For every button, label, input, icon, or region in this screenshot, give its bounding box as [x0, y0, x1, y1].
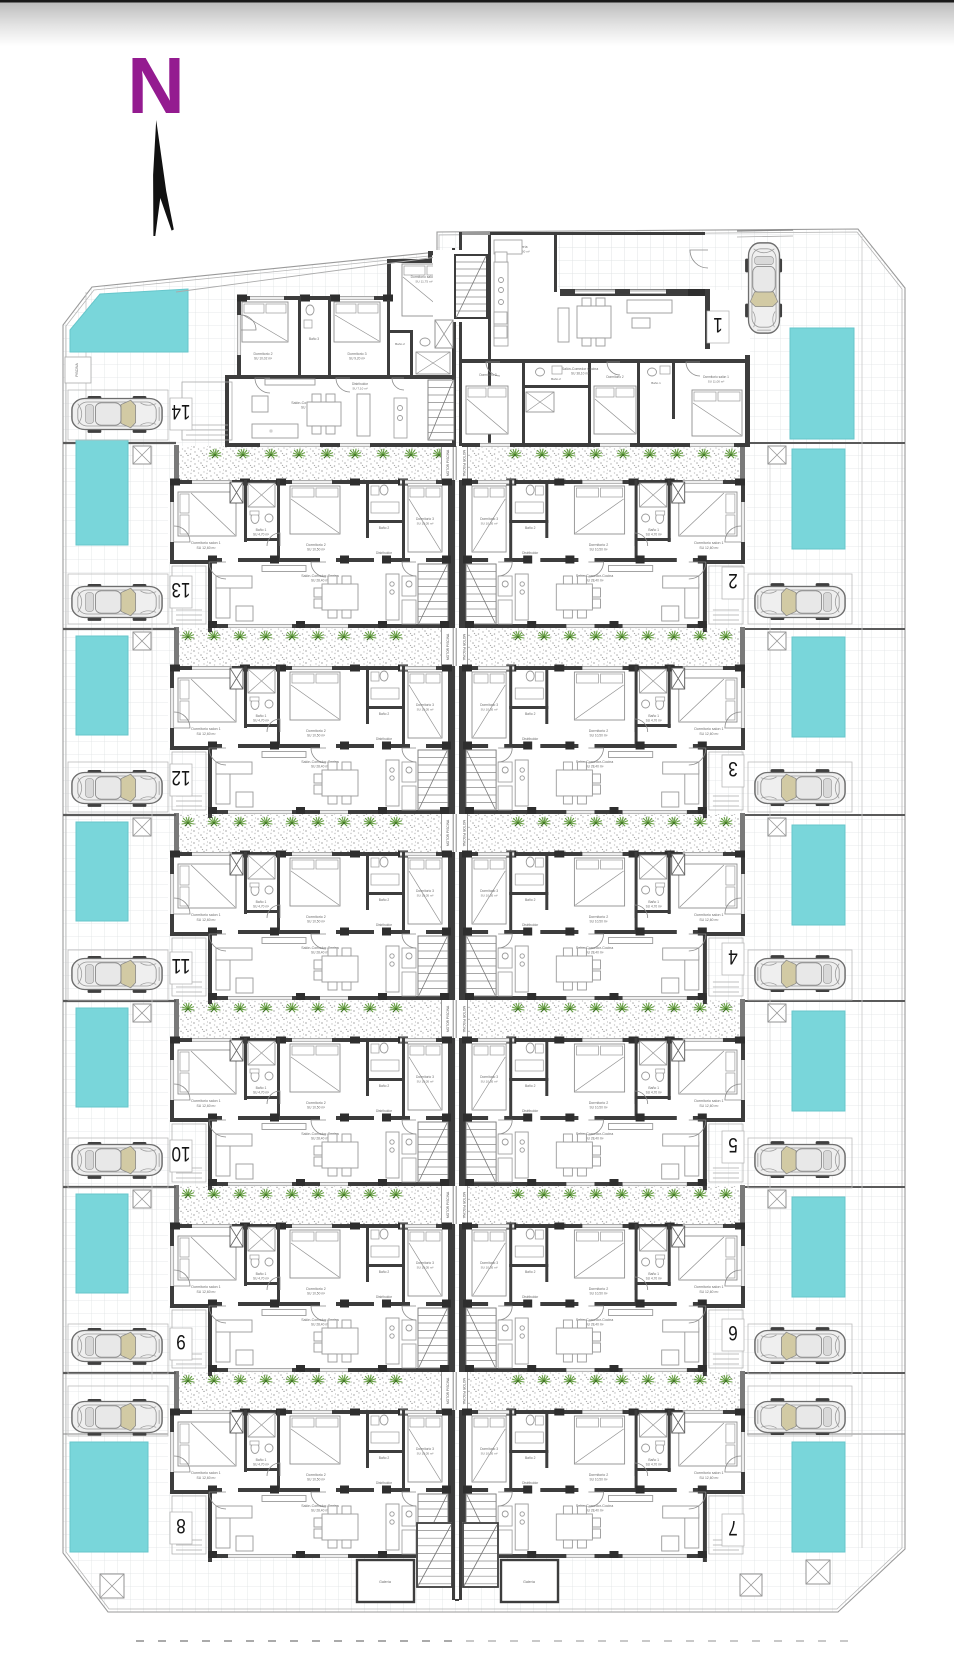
svg-text:14: 14: [171, 400, 190, 423]
svg-text:Dormitorio salon 1: Dormitorio salon 1: [694, 913, 723, 917]
svg-text:Dormitorio 2: Dormitorio 2: [589, 915, 609, 919]
svg-text:SU 9,20 m²: SU 9,20 m²: [349, 357, 365, 361]
svg-text:Dormitorio 2: Dormitorio 2: [306, 1473, 326, 1477]
svg-text:SU 12,60 m²: SU 12,60 m²: [699, 546, 719, 550]
svg-text:Distribuidor: Distribuidor: [522, 551, 539, 555]
svg-text:MOTOR PISCINA: MOTOR PISCINA: [446, 1191, 450, 1218]
svg-text:10: 10: [172, 1142, 191, 1165]
svg-text:Dormitorio 3: Dormitorio 3: [347, 352, 366, 356]
svg-text:Dormitorio 2: Dormitorio 2: [306, 1101, 326, 1105]
svg-text:SU 4,70 m²: SU 4,70 m²: [646, 905, 662, 909]
svg-text:Baño 1: Baño 1: [256, 1086, 267, 1090]
svg-text:Dormitorio 2: Dormitorio 2: [306, 729, 326, 733]
svg-text:SU 12,60 m²: SU 12,60 m²: [196, 918, 216, 922]
svg-text:Dormitorio 3: Dormitorio 3: [416, 517, 434, 521]
svg-text:SU 28,40 m²: SU 28,40 m²: [586, 1323, 604, 1327]
svg-text:SU 28,40 m²: SU 28,40 m²: [311, 1509, 329, 1513]
svg-text:SU 4,70 m²: SU 4,70 m²: [253, 1463, 269, 1467]
svg-text:Dormitorio salon 1: Dormitorio salon 1: [191, 1471, 220, 1475]
svg-text:SU 10,50 m²: SU 10,50 m²: [590, 1478, 608, 1482]
svg-text:MOTOR PISCINA: MOTOR PISCINA: [462, 1192, 466, 1219]
svg-text:Dormitorio 3: Dormitorio 3: [416, 889, 434, 893]
svg-text:SU 12,60 m²: SU 12,60 m²: [196, 732, 216, 736]
svg-text:SU 12,60 m²: SU 12,60 m²: [196, 1290, 216, 1294]
svg-text:Distribuidor: Distribuidor: [522, 737, 539, 741]
svg-text:Baño 2: Baño 2: [379, 712, 390, 716]
svg-text:SU 10,50 m²: SU 10,50 m²: [590, 1292, 608, 1296]
svg-text:SU 4,70 m²: SU 4,70 m²: [646, 1277, 662, 1281]
svg-text:SU 28,40 m²: SU 28,40 m²: [586, 579, 604, 583]
svg-text:Dormitorio 2: Dormitorio 2: [306, 915, 326, 919]
svg-text:13: 13: [172, 578, 191, 601]
svg-text:Dormitorio salon 1: Dormitorio salon 1: [191, 1285, 220, 1289]
svg-text:PISCINA: PISCINA: [75, 362, 79, 376]
svg-text:SU 28,40 m²: SU 28,40 m²: [586, 765, 604, 769]
svg-text:Dormitorio salon 1: Dormitorio salon 1: [191, 1099, 220, 1103]
svg-text:Baño 2: Baño 2: [379, 898, 390, 902]
svg-text:Dormitorio salón 1: Dormitorio salón 1: [703, 375, 729, 379]
svg-text:SU 28,40 m²: SU 28,40 m²: [311, 765, 329, 769]
svg-text:SU 28,40 m²: SU 28,40 m²: [586, 1509, 604, 1513]
svg-text:Baño 2: Baño 2: [525, 1456, 536, 1460]
svg-text:SU 10,50 m²: SU 10,50 m²: [590, 548, 608, 552]
svg-text:Dormitorio salon 1: Dormitorio salon 1: [191, 913, 220, 917]
svg-text:SU 28,40 m²: SU 28,40 m²: [586, 1137, 604, 1141]
svg-text:Galería: Galería: [523, 1580, 535, 1584]
svg-text:Dormitorio 2: Dormitorio 2: [589, 1287, 609, 1291]
svg-text:SU 10,05 m²: SU 10,05 m²: [417, 1080, 434, 1084]
svg-text:Distribuidor: Distribuidor: [376, 1109, 393, 1113]
svg-text:Baño 2: Baño 2: [379, 1084, 390, 1088]
svg-text:Dormitorio salon 1: Dormitorio salon 1: [694, 727, 723, 731]
svg-text:SU 28,40 m²: SU 28,40 m²: [311, 1137, 329, 1141]
svg-text:SU 4,70 m²: SU 4,70 m²: [253, 1277, 269, 1281]
svg-text:SU 10,05 m²: SU 10,05 m²: [417, 522, 434, 526]
svg-text:SU 10,05 m²: SU 10,05 m²: [417, 894, 434, 898]
svg-text:SU 10,05 m²: SU 10,05 m²: [481, 1452, 498, 1456]
svg-text:Distribuidor: Distribuidor: [522, 1109, 539, 1113]
svg-text:Dormitorio salon 1: Dormitorio salon 1: [191, 541, 220, 545]
svg-text:SU 10,05 m²: SU 10,05 m²: [481, 1266, 498, 1270]
svg-text:Distribuidor: Distribuidor: [376, 737, 393, 741]
svg-text:Baño 2: Baño 2: [525, 526, 536, 530]
svg-text:Baño 1: Baño 1: [256, 1458, 267, 1462]
svg-text:Dormitorio 3: Dormitorio 3: [480, 517, 498, 521]
svg-text:SU 11,75 m²: SU 11,75 m²: [415, 280, 432, 284]
svg-text:SU 10,05 m²: SU 10,05 m²: [417, 1266, 434, 1270]
svg-text:Dormitorio 3: Dormitorio 3: [480, 1447, 498, 1451]
svg-text:Galería: Galería: [379, 1580, 391, 1584]
svg-text:SU 10,50 m²: SU 10,50 m²: [307, 1478, 325, 1482]
svg-text:Baño 1: Baño 1: [256, 1272, 267, 1276]
svg-text:Dormitorio 2: Dormitorio 2: [589, 1101, 609, 1105]
svg-text:Dormitorio 2: Dormitorio 2: [306, 543, 326, 547]
svg-text:Dormitorio salon 1: Dormitorio salon 1: [694, 541, 723, 545]
svg-text:SU 10,50 m²: SU 10,50 m²: [307, 1106, 325, 1110]
svg-text:SU 12,60 m²: SU 12,60 m²: [196, 1476, 216, 1480]
svg-text:Baño 2: Baño 2: [525, 1270, 536, 1274]
svg-text:Baño 1: Baño 1: [256, 528, 267, 532]
svg-text:Distribuidor: Distribuidor: [376, 923, 393, 927]
svg-text:MOTOR PISCINA: MOTOR PISCINA: [446, 633, 450, 660]
svg-text:Dormitorio 2: Dormitorio 2: [589, 729, 609, 733]
svg-text:3: 3: [728, 757, 738, 780]
svg-text:SU 10,50 m²: SU 10,50 m²: [590, 920, 608, 924]
svg-text:SU 4,70 m²: SU 4,70 m²: [253, 1091, 269, 1095]
svg-text:Dormitorio salon 1: Dormitorio salon 1: [191, 727, 220, 731]
svg-text:MOTOR PISCINA: MOTOR PISCINA: [446, 449, 450, 476]
svg-text:SU 4,70 m²: SU 4,70 m²: [253, 905, 269, 909]
svg-text:SU 12,60 m²: SU 12,60 m²: [699, 1290, 719, 1294]
svg-text:MOTOR PISCINA: MOTOR PISCINA: [446, 819, 450, 846]
svg-text:SU 10,50 m²: SU 10,50 m²: [307, 1292, 325, 1296]
svg-text:MOTOR PISCINA: MOTOR PISCINA: [462, 450, 466, 477]
svg-text:MOTOR PISCINA: MOTOR PISCINA: [462, 634, 466, 661]
svg-text:Distribuidor: Distribuidor: [352, 382, 369, 386]
svg-text:N: N: [127, 41, 185, 130]
svg-text:Baño 1: Baño 1: [256, 900, 267, 904]
svg-text:Baño 2: Baño 2: [379, 1456, 390, 1460]
svg-text:SU 12,60 m²: SU 12,60 m²: [699, 1104, 719, 1108]
svg-text:SU 10,50 m²: SU 10,50 m²: [307, 734, 325, 738]
svg-text:MOTOR PISCINA: MOTOR PISCINA: [462, 1006, 466, 1033]
svg-text:SU 10,02 m²: SU 10,02 m²: [254, 357, 272, 361]
svg-text:11: 11: [172, 954, 191, 977]
svg-text:SU 7,10 m²: SU 7,10 m²: [352, 387, 367, 391]
svg-text:SU 4,70 m²: SU 4,70 m²: [253, 719, 269, 723]
svg-text:SU 10,05 m²: SU 10,05 m²: [481, 1080, 498, 1084]
svg-text:SU 10,50 m²: SU 10,50 m²: [307, 920, 325, 924]
svg-text:Distribuidor: Distribuidor: [522, 1481, 539, 1485]
svg-text:1: 1: [713, 313, 723, 336]
svg-text:Dormitorio 3: Dormitorio 3: [416, 1075, 434, 1079]
svg-text:Baño 3: Baño 3: [309, 337, 319, 341]
svg-text:SU 10,05 m²: SU 10,05 m²: [417, 708, 434, 712]
svg-text:Baño 1: Baño 1: [648, 528, 659, 532]
svg-text:SU 10,50 m²: SU 10,50 m²: [590, 1106, 608, 1110]
svg-text:Dormitorio 2: Dormitorio 2: [589, 543, 609, 547]
svg-text:Baño 1: Baño 1: [648, 900, 659, 904]
svg-text:MOTOR PISCINA: MOTOR PISCINA: [462, 1378, 466, 1405]
svg-text:SU 10,05 m²: SU 10,05 m²: [481, 708, 498, 712]
svg-text:Distribuidor: Distribuidor: [376, 1481, 393, 1485]
svg-text:SU 4,70 m²: SU 4,70 m²: [253, 533, 269, 537]
svg-text:Dormitorio 2: Dormitorio 2: [253, 352, 272, 356]
svg-text:SU 10,50 m²: SU 10,50 m²: [590, 734, 608, 738]
svg-text:Baño 2: Baño 2: [379, 526, 390, 530]
svg-text:SU 10,05 m²: SU 10,05 m²: [481, 522, 498, 526]
svg-text:SU 38,10 m²: SU 38,10 m²: [571, 372, 589, 376]
svg-text:SU 4,70 m²: SU 4,70 m²: [646, 1091, 662, 1095]
svg-text:Dormitorio 2: Dormitorio 2: [589, 1473, 609, 1477]
svg-text:Distribuidor: Distribuidor: [376, 1295, 393, 1299]
svg-text:SU 12,60 m²: SU 12,60 m²: [699, 918, 719, 922]
svg-text:Dormitorio 2: Dormitorio 2: [606, 375, 624, 379]
svg-text:SU 28,40 m²: SU 28,40 m²: [311, 1323, 329, 1327]
svg-text:Dormitorio 3: Dormitorio 3: [416, 1447, 434, 1451]
svg-text:MOTOR PISCINA: MOTOR PISCINA: [446, 1005, 450, 1032]
svg-text:Dormitorio salon 1: Dormitorio salon 1: [694, 1471, 723, 1475]
svg-text:SU 12,60 m²: SU 12,60 m²: [196, 546, 216, 550]
svg-text:Baño 2: Baño 2: [525, 712, 536, 716]
svg-text:SU 28,40 m²: SU 28,40 m²: [311, 951, 329, 955]
svg-text:Dormitorio 3: Dormitorio 3: [416, 703, 434, 707]
svg-text:Dormitorio 3: Dormitorio 3: [480, 1075, 498, 1079]
svg-text:Baño 2: Baño 2: [551, 377, 561, 381]
svg-text:12: 12: [172, 766, 191, 789]
svg-text:7: 7: [728, 1516, 738, 1539]
svg-text:Distribuidor: Distribuidor: [522, 923, 539, 927]
svg-text:SU 10,05 m²: SU 10,05 m²: [481, 894, 498, 898]
svg-text:8: 8: [176, 1514, 186, 1537]
svg-text:SU 4,70 m²: SU 4,70 m²: [646, 533, 662, 537]
svg-text:SU 11,00 m²: SU 11,00 m²: [708, 380, 725, 384]
svg-text:Baño 2: Baño 2: [395, 342, 405, 346]
svg-text:SU 12,60 m²: SU 12,60 m²: [699, 732, 719, 736]
svg-text:Baño 1: Baño 1: [651, 381, 661, 385]
svg-text:Baño 2: Baño 2: [379, 1270, 390, 1274]
svg-text:Dormitorio salon 1: Dormitorio salon 1: [694, 1099, 723, 1103]
svg-text:Dormitorio 3: Dormitorio 3: [480, 703, 498, 707]
svg-text:5: 5: [728, 1133, 738, 1156]
svg-text:SU 10,50 m²: SU 10,50 m²: [307, 548, 325, 552]
svg-text:SU 12,60 m²: SU 12,60 m²: [699, 1476, 719, 1480]
svg-text:SU 10,05 m²: SU 10,05 m²: [417, 1452, 434, 1456]
svg-text:Dormitorio 3: Dormitorio 3: [480, 1261, 498, 1265]
svg-text:Baño 1: Baño 1: [648, 1272, 659, 1276]
svg-text:Baño 1: Baño 1: [648, 1458, 659, 1462]
svg-text:Baño 1: Baño 1: [648, 714, 659, 718]
svg-text:SU 28,40 m²: SU 28,40 m²: [311, 579, 329, 583]
svg-text:MOTOR PISCINA: MOTOR PISCINA: [446, 1377, 450, 1404]
svg-text:SU 4,70 m²: SU 4,70 m²: [646, 719, 662, 723]
svg-text:4: 4: [728, 945, 738, 968]
svg-text:SU 28,40 m²: SU 28,40 m²: [586, 951, 604, 955]
svg-text:9: 9: [176, 1330, 186, 1353]
svg-text:SU 4,70 m²: SU 4,70 m²: [646, 1463, 662, 1467]
svg-text:Salón-Comedor Cocina: Salón-Comedor Cocina: [562, 367, 598, 371]
svg-text:Dormitorio 3: Dormitorio 3: [480, 889, 498, 893]
svg-text:Baño 1: Baño 1: [256, 714, 267, 718]
svg-text:2: 2: [728, 569, 738, 592]
svg-text:Dormitorio 3: Dormitorio 3: [416, 1261, 434, 1265]
svg-text:Baño 2: Baño 2: [525, 1084, 536, 1088]
svg-text:Baño 2: Baño 2: [525, 898, 536, 902]
svg-text:6: 6: [728, 1321, 738, 1344]
svg-text:MOTOR PISCINA: MOTOR PISCINA: [462, 820, 466, 847]
svg-text:SU 12,60 m²: SU 12,60 m²: [196, 1104, 216, 1108]
svg-text:Dormitorio 2: Dormitorio 2: [306, 1287, 326, 1291]
svg-text:Distribuidor: Distribuidor: [376, 551, 393, 555]
svg-text:Baño 1: Baño 1: [648, 1086, 659, 1090]
svg-text:Dormitorio salon 1: Dormitorio salon 1: [694, 1285, 723, 1289]
svg-text:Distribuidor: Distribuidor: [522, 1295, 539, 1299]
